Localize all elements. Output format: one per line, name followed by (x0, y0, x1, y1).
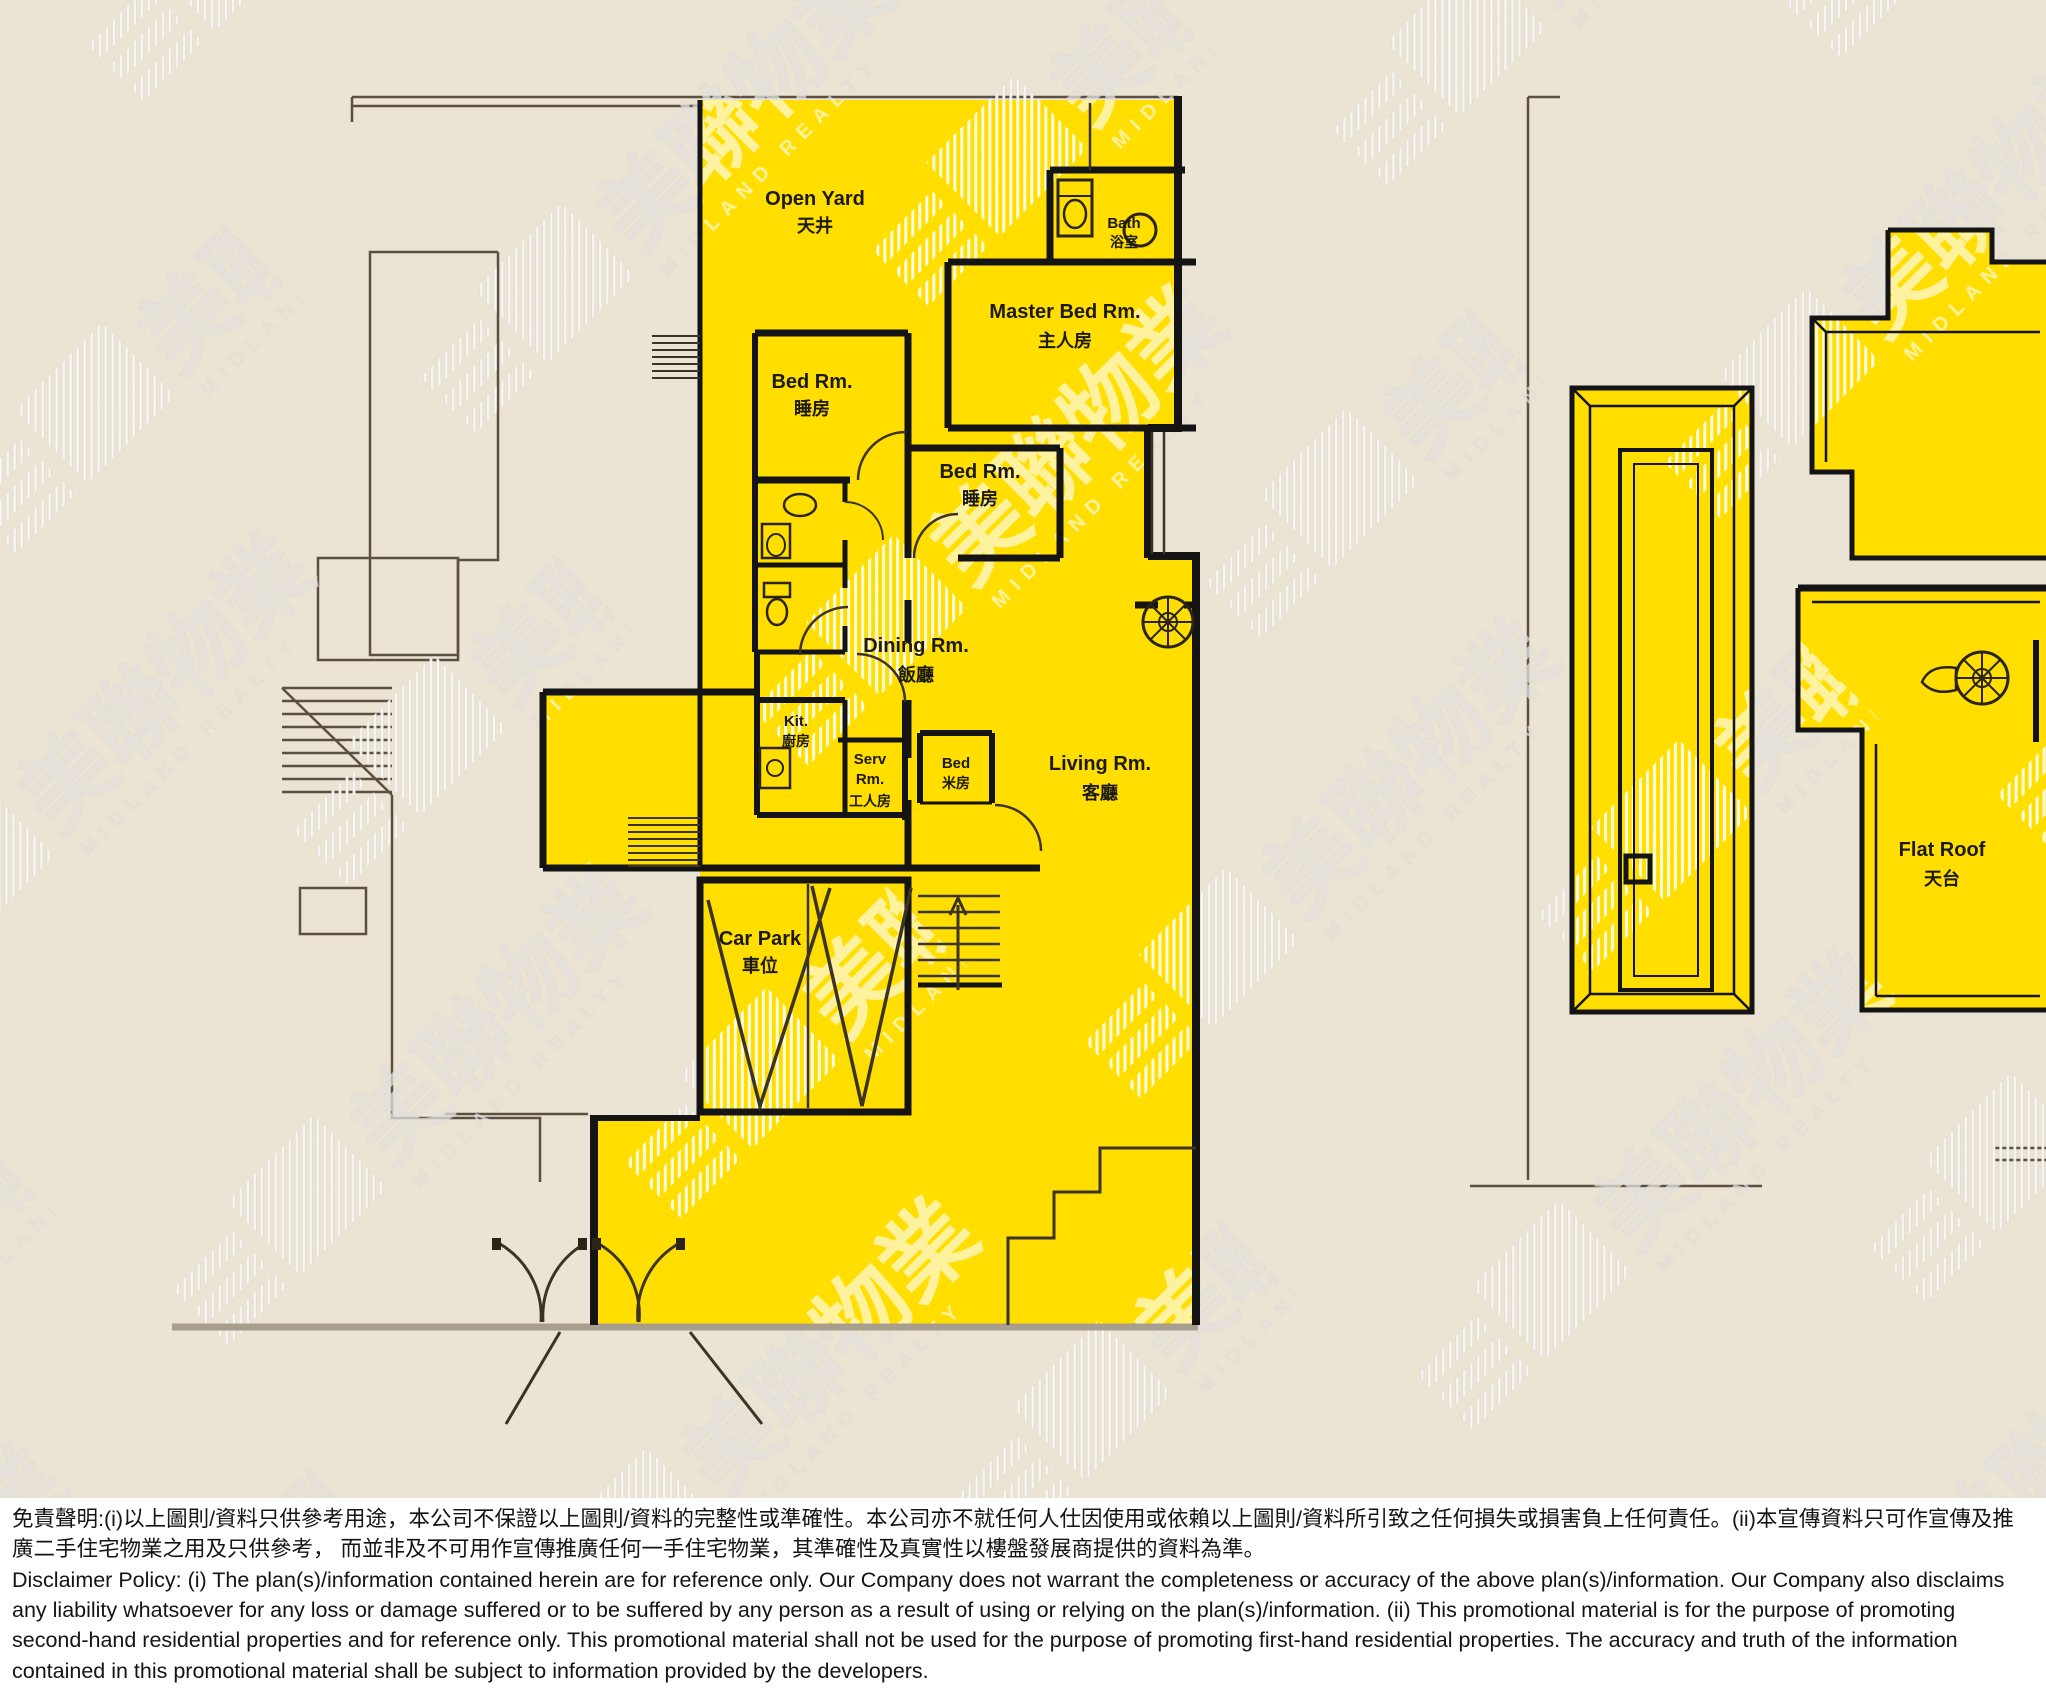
label-open-yard-en: Open Yard (765, 188, 865, 210)
label-living-en: Living Rm. (1049, 753, 1151, 775)
label-dining-zh: 飯廳 (897, 664, 934, 685)
label-car-park-zh: 車位 (742, 955, 778, 976)
disclaimer-text-zh: 免責聲明:(i)以上圖則/資料只供參考用途，本公司不保證以上圖則/資料的完整性或… (12, 1504, 2034, 1565)
floor-plan-image: 美聯物業 MIDLAND REALTY 美聯物業 MIDLAND REALTY (0, 0, 2046, 1500)
disclaimer-block: 免責聲明:(i)以上圖則/資料只供參考用途，本公司不保證以上圖則/資料的完整性或… (0, 1498, 2046, 1694)
label-car-park-en: Car Park (719, 928, 802, 950)
label-kitchen-zh: 廚房 (782, 733, 810, 749)
label-master-bed-zh: 主人房 (1038, 330, 1092, 351)
label-flat-roof-zh: 天台 (1924, 868, 1960, 889)
label-dining-en: Dining Rm. (863, 635, 969, 657)
label-bath-zh: 浴室 (1110, 234, 1138, 250)
label-servant-zh: 工人房 (849, 793, 891, 809)
label-master-bed-en: Master Bed Rm. (989, 301, 1140, 323)
label-living-zh: 客廳 (1082, 782, 1118, 803)
watermark-layer-light (0, 0, 2046, 1500)
floor-plan-svg: 美聯物業 MIDLAND REALTY 美聯物業 MIDLAND REALTY (0, 0, 2046, 1500)
label-bed1-zh: 睡房 (794, 398, 830, 419)
label-bed2-zh: 睡房 (962, 488, 998, 509)
label-bed1-en: Bed Rm. (771, 371, 852, 393)
label-kitchen-en: Kit. (784, 713, 808, 730)
label-store-bed-zh: 米房 (942, 775, 970, 791)
label-servant-en2: Rm. (856, 771, 884, 788)
label-bed2-en: Bed Rm. (939, 461, 1020, 483)
label-bath-en: Bath (1107, 215, 1140, 232)
label-servant-en1: Serv (854, 751, 887, 768)
label-open-yard-zh: 天井 (797, 215, 833, 236)
disclaimer-text-en: Disclaimer Policy: (i) The plan(s)/infor… (12, 1565, 2034, 1686)
label-flat-roof-en: Flat Roof (1899, 839, 1986, 861)
label-store-bed-en: Bed (942, 755, 970, 772)
screenshot-root: 美聯物業 MIDLAND REALTY 美聯物業 MIDLAND REALTY (0, 0, 2046, 1694)
